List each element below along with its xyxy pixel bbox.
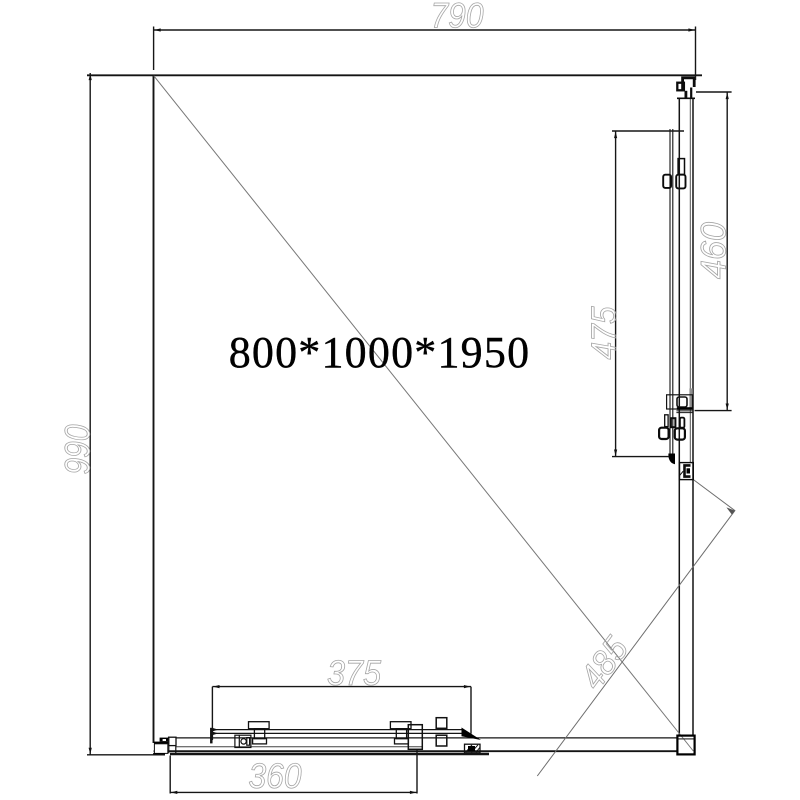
svg-text:990: 990 xyxy=(59,424,98,474)
svg-text:475: 475 xyxy=(585,306,624,359)
svg-text:460: 460 xyxy=(695,221,734,279)
svg-text:375: 375 xyxy=(327,654,381,693)
svg-text:800*1000*1950: 800*1000*1950 xyxy=(229,328,531,377)
svg-text:790: 790 xyxy=(431,0,484,36)
svg-text:360: 360 xyxy=(249,757,302,796)
